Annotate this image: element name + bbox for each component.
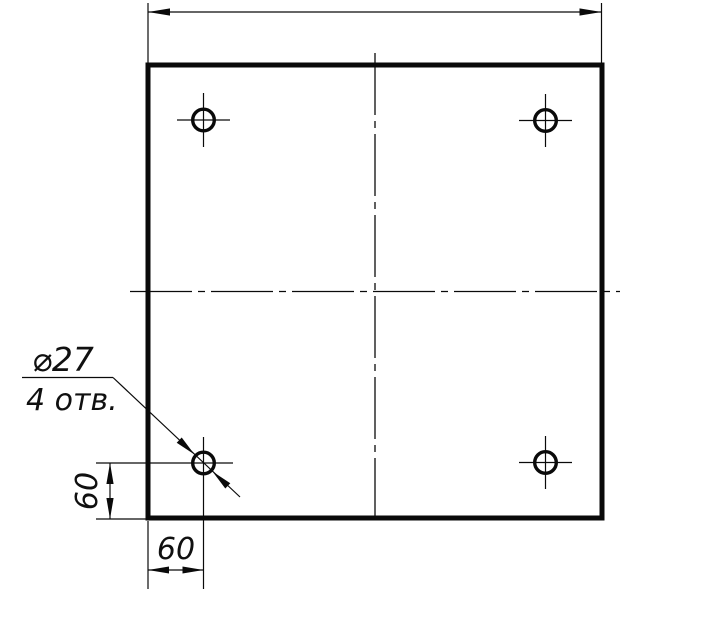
arrowhead-down-icon <box>106 498 113 519</box>
dim-bottom-value: 60 <box>157 532 195 567</box>
arrowhead-left-icon <box>148 8 170 15</box>
dimension-hole-offset-x: 60 <box>148 521 204 589</box>
arrowhead-right-icon <box>183 567 204 574</box>
arrowhead-up-icon <box>106 463 113 484</box>
arrowhead-left-icon <box>148 567 169 574</box>
dim-left-value: 60 <box>70 472 105 510</box>
hole-diameter-label: ⌀27 <box>32 340 94 379</box>
technical-drawing-canvas: 60 60 ⌀27 4 отв. <box>0 0 713 631</box>
plate-drawing: 60 60 ⌀27 4 отв. <box>0 0 713 631</box>
hole-count-label: 4 отв. <box>26 383 118 418</box>
dimension-hole-offset-y: 60 <box>70 463 148 519</box>
arrowhead-right-icon <box>580 8 602 15</box>
